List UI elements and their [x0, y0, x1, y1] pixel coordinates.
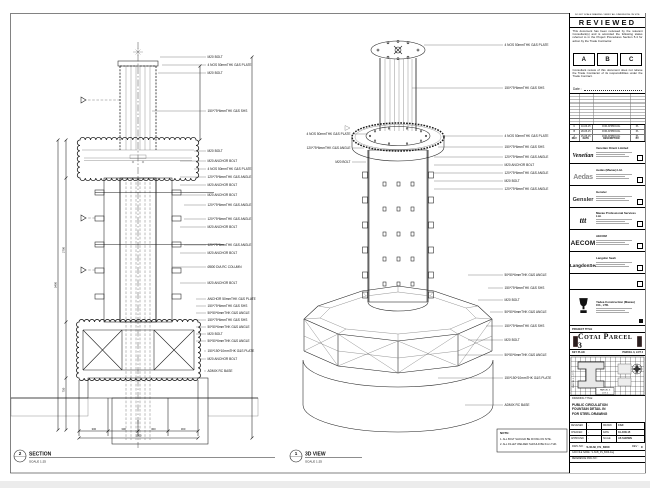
note-title: NOTE: — [500, 431, 509, 435]
callout-label: 4 NOS 50mmTHK G&S PLATE — [306, 132, 350, 136]
callout-label: 120*75*6mmTHK G&S ANGLE — [208, 217, 252, 221]
consultant-macau-professional: ttt Macau Professional Services Ltd. — [570, 208, 645, 230]
aedas-logo: Aedas — [573, 174, 593, 181]
status-checkbox — [637, 281, 643, 287]
emblem-icon — [637, 336, 642, 347]
address-lines — [596, 219, 638, 224]
stamp-paragraph: This document has been reviewed by the r… — [570, 28, 645, 52]
callout-label: M20 BOLT — [505, 298, 520, 302]
cad-file-label: CAD FILE NAME : — [572, 452, 591, 454]
consultant-gensler: Gensler Gensler — [570, 186, 645, 208]
callout-label: 120*75*6mmTHK G&S ANGLE — [208, 203, 252, 207]
iso-cleats — [363, 172, 434, 298]
rev-head-cell: DATE — [580, 137, 594, 141]
field-label: DRAWN — [602, 423, 617, 430]
status-checkbox — [637, 199, 643, 205]
callout-label: 50*50*6mmTHK G&S ANGLE — [208, 325, 250, 329]
dim-label: 1200 — [136, 434, 142, 438]
drawing-title-line: FOR STEEL DRAWING — [572, 412, 645, 416]
ground-left — [11, 398, 88, 416]
status-checkbox — [637, 221, 643, 227]
drawing-title: PUBLIC CIRCULATION FOUNTAIN DETAIL IN FO… — [570, 402, 645, 422]
keyplan: PARCEL 1, LOT 1 PARCEL 3 LOT 2 — [570, 356, 645, 396]
contractor-logo — [577, 297, 590, 314]
rev-value: C — [641, 445, 643, 449]
footing — [112, 398, 208, 444]
keyplan-side-label: PARCEL 1, LOT 1 — [572, 370, 575, 388]
callout-label: 120*75*6mmTHK G&S ANGLE — [208, 175, 252, 179]
field-label: SCALE — [602, 436, 617, 443]
field-value: 19-JUN-15 — [617, 430, 645, 437]
note-box: NOTE: 1. ALL BOLT SHOULD BE FIXING ON SI… — [497, 429, 567, 452]
callout-label: 50*50*6mmTHK G&S ANGLE — [208, 311, 250, 315]
callout-label: M20 ANCHOR BOLT — [208, 159, 238, 163]
callout-label: 4 NOS 50mmTHK G&S PLATE — [505, 134, 549, 138]
rev-head-cell: BY — [631, 137, 646, 141]
callout-label: Ø800 DIA RC COLUMN — [208, 265, 243, 269]
dim-label: 750 — [62, 387, 66, 392]
callout-label: 150*75*6mmTHK G&S SHS — [208, 304, 248, 308]
consultant-venetian: Venetian Venetian Orient Limited — [570, 142, 645, 164]
callout-label: 120*75*6mmTHK G&S ANGLE — [307, 146, 351, 150]
callout-label: 150*150*10mmTHK G&S PLATE — [505, 376, 552, 380]
consultant-empty-block — [570, 274, 645, 290]
callout-label: M20 BOLT — [208, 149, 223, 153]
section-leaders — [152, 57, 206, 371]
keyplan-label: KEY PLAN — [572, 350, 585, 355]
rev-label: REV : — [632, 445, 639, 448]
page-edge — [0, 481, 650, 488]
stamp-paragraph: Consultant review of this document does … — [570, 67, 645, 86]
ttt-logo: ttt — [580, 216, 587, 225]
field-value: - — [587, 430, 602, 437]
titleblock-info-grid: DESIGNED-DRAWNCAD CHECKED-DATE19-JUN-15 … — [570, 422, 645, 443]
contractor-block: Yadea Construction (Macau) CO., LTD. — [570, 290, 645, 326]
callout-label: M20 ANCHOR BOLT — [505, 163, 535, 167]
dim-label: 300 — [181, 427, 186, 431]
cad-file-value: S-SUB_FS_8000.dwg — [592, 452, 614, 454]
stamp-option-b: B — [597, 53, 619, 66]
sheet-border — [11, 14, 646, 474]
pedestal — [88, 378, 208, 398]
column-shaft — [369, 150, 427, 302]
aecom-logo: AECOM — [571, 240, 596, 247]
address-lines — [596, 196, 638, 201]
titleblock-filler — [570, 463, 645, 473]
stamp-option-c: C — [620, 53, 642, 66]
callout-label: 50*50*6mmTHK G&S ANGLE — [208, 339, 250, 343]
gensler-logo: Gensler — [573, 197, 594, 203]
view-title: 3D VIEW — [305, 452, 326, 458]
field-label: DATE — [602, 430, 617, 437]
dim-label: 2700 — [62, 247, 66, 253]
callout-label: M20 BOLT — [208, 55, 223, 59]
address-lines — [596, 174, 638, 179]
address-lines — [596, 240, 638, 245]
drawing-sheet: 300 300 300 300 1200 2700 750 5400 M20 B… — [0, 0, 650, 488]
consultant-name: Langdon Seah — [596, 257, 638, 260]
keyplan-tag: PARCEL 3 — [600, 389, 611, 392]
address-lines — [596, 308, 638, 313]
callout-label: 150*75*6mmTHK G&S SHS — [505, 86, 545, 90]
consultant-langdon-seah: LangdonSeah Langdon Seah — [570, 252, 645, 274]
callout-label: 4 NOS 50mmTHK G&S PLATE — [505, 43, 549, 47]
callout-label: ADMIX RC BASE — [208, 369, 233, 373]
dim-label: 300 — [92, 427, 97, 431]
consultant-name: Gensler — [596, 191, 638, 194]
keyplan-map: PARCEL 1, LOT 1 PARCEL 3 LOT 2 — [570, 356, 645, 396]
callout-label: M20 ANCHOR BOLT — [208, 357, 238, 361]
address-lines — [596, 152, 638, 157]
consultant-name: Venetian Orient Limited — [596, 147, 638, 150]
consultant-name: Aedas (Macau) Ltd. — [596, 169, 638, 172]
section-view-label: 2 SECTION SCALE 1:25 — [14, 450, 275, 464]
rev-head-cell: DESCRIPTION — [593, 137, 631, 141]
callout-label: 4 NOS 50mmTHK G&S PLATE — [208, 167, 252, 171]
view-bubble-number: 2 — [19, 451, 22, 456]
consultant-name: AECOM — [596, 235, 638, 238]
consultant-name: Macau Professional Services Ltd. — [596, 212, 638, 219]
callout-label: 150*150*10mmTHK G&S PLATE — [208, 349, 255, 353]
consultant-aedas: Aedas Aedas (Macau) Ltd. — [570, 164, 645, 186]
callout-label: 120*75*6mmTHK G&S ANGLE — [208, 243, 252, 247]
truss-platform — [304, 286, 492, 373]
callout-label: 150*75*6mmTHK G&S SHS — [505, 286, 545, 290]
callout-label: 120*75*6mmTHK G&S ANGLE — [505, 155, 549, 159]
dwg-no-value: S-SUB_FS_8000 — [586, 445, 609, 449]
callout-label: 50*50*6mmTHK G&S ANGLE — [505, 310, 547, 314]
dim-label: 300 — [151, 427, 156, 431]
status-checkbox — [637, 177, 643, 183]
view-scale: SCALE 1:25 — [29, 460, 46, 464]
callout-label: 50*50*6mmTHK G&S ANGLE — [505, 353, 547, 357]
callout-label: ANCHOR 50mmTHK G&S PLATE — [208, 297, 256, 301]
rev-head-cell: REV — [570, 137, 580, 141]
view-title: SECTION — [29, 452, 52, 458]
dimension-lines — [57, 56, 254, 440]
truss-panel — [83, 330, 194, 370]
field-label: APPROVED — [570, 436, 587, 443]
status-checkbox — [637, 265, 643, 271]
callout-label: M20 BOLT — [505, 179, 520, 183]
field-value: CAD — [617, 423, 645, 430]
callout-label: 120*75*6mmTHK G&S ANGLE — [505, 187, 549, 191]
callout-label: 50*50*6mmTHK G&S ANGLE — [505, 273, 547, 277]
callout-label: 120*75*6mmTHK G&S ANGLE — [505, 171, 549, 175]
stamp-date-row: Date : — [570, 86, 645, 94]
lower-ring-box — [76, 319, 200, 380]
revision-filled-rows: C10-06-15FOR APPROVALPL B28-05-15FOR APP… — [570, 125, 645, 137]
status-checkbox — [637, 155, 643, 161]
rc-column — [104, 178, 172, 322]
keyplan-lot-label: PARCEL 3, LOT 2 — [622, 350, 643, 355]
iso-view-label: 1 3D VIEW SCALE 1:25 — [290, 450, 362, 464]
field-label: CHECKED — [570, 430, 587, 437]
dwg-no-label: DWG NO : — [572, 445, 584, 448]
field-value: - — [587, 436, 602, 443]
revision-flags — [81, 97, 120, 273]
view-scale: SCALE 1:25 — [305, 460, 322, 464]
stamp-date-line — [584, 87, 642, 91]
project-name-block: Cotai Parcel 3 — [570, 333, 645, 350]
consultant-aecom: AECOM AECOM — [570, 230, 645, 252]
section-view: 300 300 300 300 1200 2700 750 5400 M20 B… — [11, 42, 258, 448]
field-value: AS SHOWN — [617, 436, 645, 443]
callout-label: M20 BOLT — [208, 71, 223, 75]
callout-label: M20 BOLT — [505, 338, 520, 342]
callout-label: M20 ANCHOR BOLT — [208, 183, 238, 187]
keyplan-tag: LOT 2 — [602, 393, 609, 395]
address-lines — [596, 262, 638, 267]
reviewed-stamp-title: REVIEWED — [570, 18, 645, 28]
callout-label: M20 ANCHOR BOLT — [208, 225, 238, 229]
callout-label: M20 ANCHOR BOLT — [208, 193, 238, 197]
note-line: 1. ALL BOLT SHOULD BE FIXING ON SITE. — [500, 437, 552, 441]
langdon-seah-logo: LangdonSeah — [570, 263, 596, 268]
iso-view: 4 NOS 50mmTHK G&S PLATE 150*75*6mmTHK G&… — [303, 40, 551, 432]
dim-label: 5400 — [54, 282, 58, 288]
callout-label: M20 BOLT — [335, 160, 350, 164]
iso-leaders — [352, 45, 503, 405]
view-bubble-number: 1 — [295, 451, 298, 456]
dim-label: 300 — [121, 427, 126, 431]
project-name: Cotai Parcel 3 — [578, 333, 637, 350]
stamp-status-options: A B C — [570, 52, 645, 67]
revision-empty-rows — [570, 94, 645, 125]
drawing-canvas: 300 300 300 300 1200 2700 750 5400 M20 B… — [0, 0, 650, 488]
field-label: DESIGNED — [570, 423, 587, 430]
project-title-label: PROJECT TITLE — [570, 326, 645, 333]
callout-label: ADMIX RC BASE — [505, 403, 530, 407]
stamp-date-label: Date : — [573, 87, 582, 91]
field-value: - — [587, 423, 602, 430]
callout-label: M20 BOLT — [208, 332, 223, 336]
status-checkbox — [637, 243, 643, 249]
callout-label: 150*75*6mmTHK G&S SHS — [208, 318, 248, 322]
contractor-mark — [639, 319, 643, 323]
contractor-name: Yadea Construction (Macau) CO., LTD. — [596, 301, 638, 308]
callout-label: M20 ANCHOR BOLT — [208, 251, 238, 255]
title-block-panel: DO NOT SCALE DRAWING. VERIFY ALL DIMENSI… — [569, 13, 645, 473]
callout-label: 4 NOS 50mmTHK G&S PLATE — [208, 63, 252, 67]
dwg-number-row: DWG NO : S-SUB_FS_8000 REV : C — [570, 443, 645, 451]
reference-dwg-label: REFERENCE DWG NO : — [572, 458, 598, 460]
callout-label: 150*75*6mmTHK G&S SHS — [208, 109, 248, 113]
callout-label: 150*75*6mmTHK G&S SHS — [505, 145, 545, 149]
callout-label: 150*75*6mmTHK G&S SHS — [505, 324, 545, 328]
ground-right — [208, 398, 258, 416]
callout-label: M20 ANCHOR BOLT — [208, 281, 238, 285]
stamp-option-a: A — [573, 53, 595, 66]
note-line: 2. ALL FILLET WELDED SHOULD BE 6mm THK. — [500, 442, 557, 446]
venetian-logo: Venetian — [573, 153, 594, 159]
cleat-brackets — [95, 190, 224, 299]
